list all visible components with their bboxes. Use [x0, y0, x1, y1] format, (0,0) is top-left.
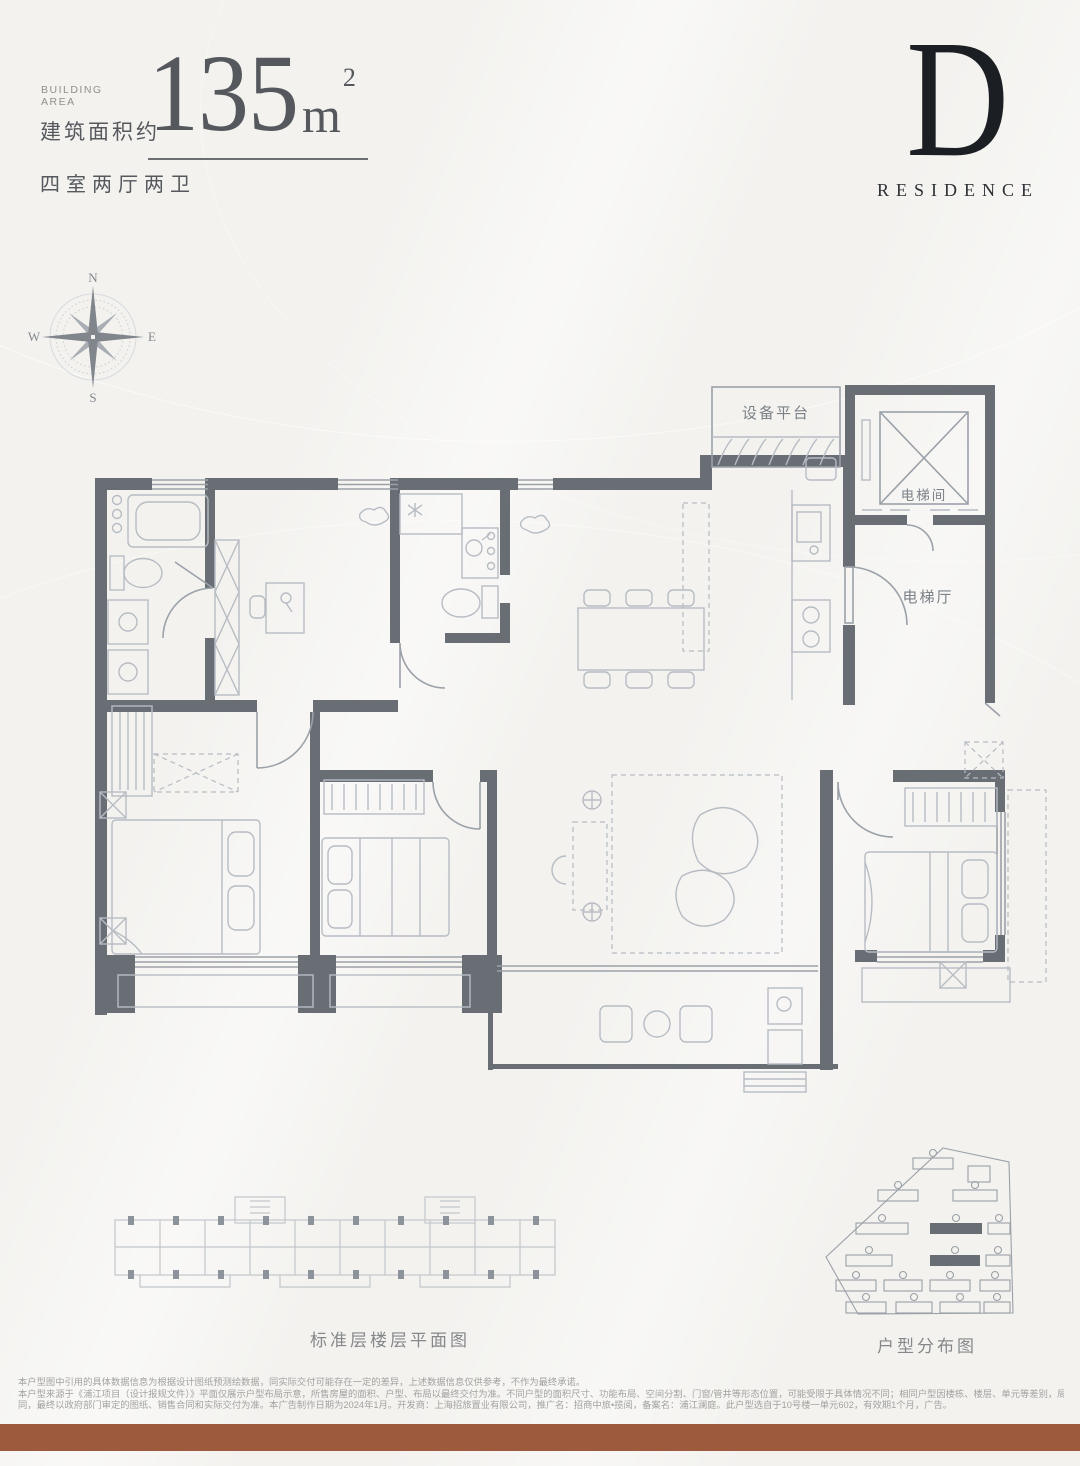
windows: [118, 480, 1010, 1092]
site-buildings: [836, 1150, 1010, 1314]
standard-floor-plan-caption: 标准层楼层平面图: [270, 1326, 510, 1351]
disclaimer-line: 同，最终以政府部门审定的图纸、销售合同和实际交付为准。本广告制作日期为2024年…: [18, 1400, 1064, 1412]
disclaimer-line: 本户型图中引用的具体数据信息为根据设计图纸预测绘数据，同实际交付可能存在一定的差…: [18, 1377, 1064, 1389]
compass-east-label: E: [148, 329, 156, 344]
furniture: [100, 458, 1046, 1064]
doors: [163, 525, 933, 837]
poster-page: BUILDING AREA 建筑面积约 135m2 四室两厅两卫 D RESID…: [0, 0, 1080, 1466]
compass-north-label: N: [88, 270, 98, 285]
accent-bar: [0, 1424, 1080, 1451]
elevator-shaft-label: 电梯间: [901, 488, 948, 503]
unit-distribution-caption: 户型分布图: [822, 1332, 1032, 1357]
elevator-shaft: 电梯间: [862, 412, 978, 510]
compass-west-label: W: [28, 329, 41, 344]
equipment-platform-label: 设备平台: [742, 405, 810, 422]
compass-south-label: S: [89, 390, 96, 405]
floor-plan: 设备平台 电梯间 电梯厅: [95, 385, 1046, 1092]
disclaimer: 本户型图中引用的具体数据信息为根据设计图纸预测绘数据，同实际交付可能存在一定的差…: [18, 1377, 1064, 1412]
site-plan: [826, 1148, 1013, 1314]
disclaimer-line: 本户型来源于《浦江项目（设计报规文件）》平面仅展示户型布局示意，所售房屋的面积、…: [18, 1389, 1064, 1401]
standard-floor-mini-plan: [115, 1197, 555, 1287]
drawings-layer: N E S W: [0, 0, 1080, 1466]
compass: N E S W: [28, 270, 156, 405]
elevator-hall-label: 电梯厅: [902, 589, 953, 606]
